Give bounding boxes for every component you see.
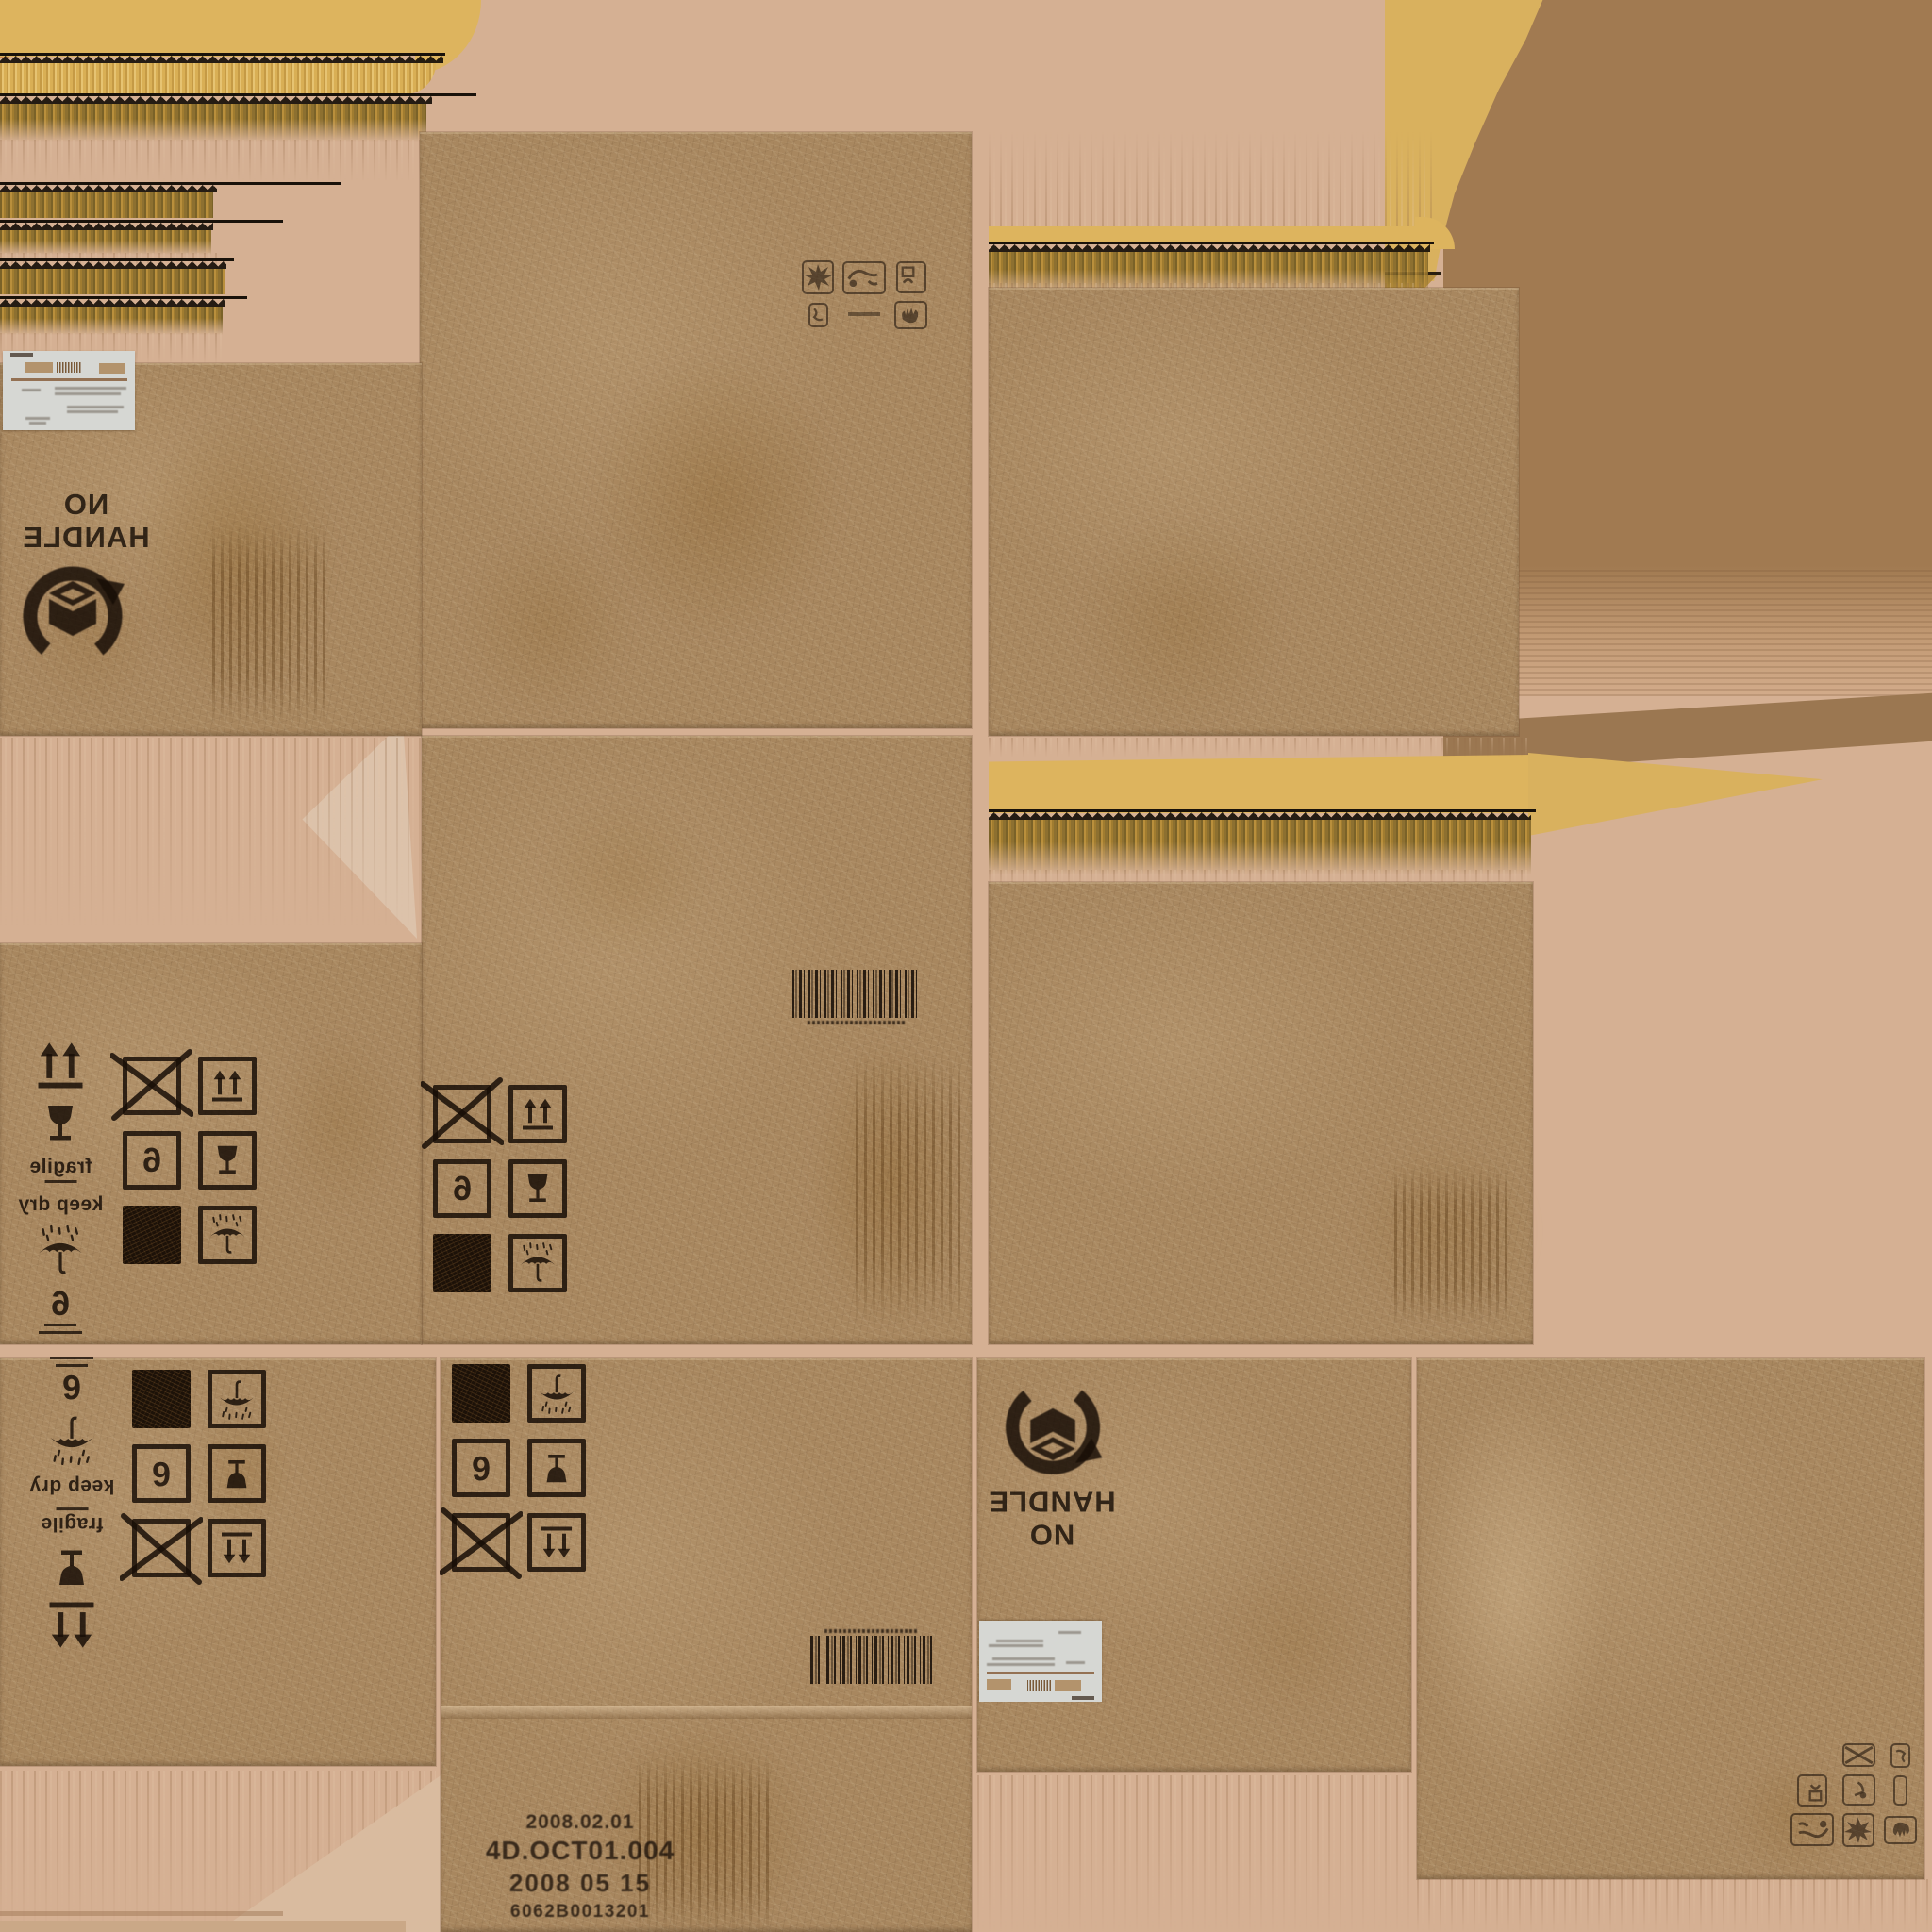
box-panel-top bbox=[420, 132, 972, 728]
label-text-row bbox=[67, 406, 124, 408]
small-stamp-icon bbox=[1890, 1743, 1910, 1768]
barcode-bars bbox=[792, 970, 921, 1018]
box-panel-right-top bbox=[989, 288, 1519, 736]
fragile-glass-box-icon bbox=[208, 1444, 266, 1503]
cardboard-texture-atlas: fragilekeep dry6 6 6 6keep dryfragile 6 … bbox=[0, 0, 1932, 1932]
print-lot-code: 4D.OCT01.004 bbox=[467, 1836, 693, 1866]
corrugation-teeth bbox=[0, 185, 217, 192]
background-streaks bbox=[989, 132, 1432, 226]
label-cutout bbox=[25, 362, 53, 373]
no-handle-line1: NO bbox=[972, 1518, 1132, 1551]
handle-with-care-stamp bbox=[998, 1370, 1109, 1481]
label-text-row bbox=[29, 422, 46, 425]
barcode-text bbox=[824, 1629, 918, 1633]
print-code-block: 2008.02.01 4D.OCT01.004 2008 05 15 6062B… bbox=[467, 1811, 693, 1923]
fold-line bbox=[441, 1706, 972, 1719]
small-stamp-icon bbox=[808, 303, 828, 327]
barcode bbox=[792, 970, 921, 1026]
handling-symbol-column: 6keep dryfragile bbox=[26, 1357, 117, 1650]
handle-with-care-stamp bbox=[15, 559, 132, 676]
label-text-row bbox=[55, 387, 126, 390]
no-stacking-crossed-box-icon bbox=[123, 1057, 181, 1115]
stain bbox=[1074, 514, 1291, 731]
no-handle-line2: HANDLE bbox=[972, 1485, 1132, 1518]
label-cutout bbox=[1055, 1680, 1081, 1690]
keep-dry-umbrella-icon bbox=[42, 1414, 101, 1465]
fragile-glass-box-icon bbox=[527, 1439, 586, 1497]
label-barcode bbox=[1027, 1680, 1051, 1690]
stamp-underline-mark bbox=[848, 312, 880, 318]
label-text-row bbox=[996, 1641, 1043, 1643]
this-way-up-box-icon bbox=[527, 1513, 586, 1572]
corrugation-strip bbox=[989, 820, 1531, 874]
stack-limit-6-icon: 6 bbox=[50, 1357, 93, 1404]
keep-dry-umbrella-box-icon bbox=[527, 1364, 586, 1423]
fragile-glass-box-icon bbox=[198, 1131, 257, 1190]
shipping-label bbox=[979, 1621, 1102, 1702]
handling-symbol-grid: 6 bbox=[452, 1364, 586, 1572]
handling-symbol-grid: 6 bbox=[132, 1370, 266, 1577]
background-streaks bbox=[0, 738, 422, 926]
print-date-2: 2008 05 15 bbox=[467, 1869, 693, 1898]
corrugation-teeth bbox=[989, 244, 1430, 252]
background-strip bbox=[0, 1921, 406, 1932]
solid-ink-box-icon bbox=[132, 1370, 191, 1428]
corrugation-teeth bbox=[0, 223, 213, 230]
background-shade bbox=[1417, 1396, 1606, 1792]
print-serial: 6062B0013201 bbox=[467, 1902, 693, 1923]
background-streaks bbox=[989, 738, 1531, 757]
empty-slot bbox=[1808, 1752, 1816, 1759]
barcode-text bbox=[808, 1021, 905, 1024]
corrugation-show-through bbox=[1394, 1165, 1507, 1325]
fragile-text: fragile bbox=[41, 1507, 104, 1535]
label-text-row bbox=[55, 392, 121, 395]
no-handle-line1: NO bbox=[6, 489, 166, 522]
sliver-stamp-icon bbox=[1893, 1775, 1907, 1806]
keep-dry-umbrella-box-icon bbox=[508, 1234, 567, 1292]
fragile-glass-icon bbox=[53, 1545, 91, 1589]
keep-dry-umbrella-box-icon bbox=[198, 1206, 257, 1264]
no-stacking-crossed-box-icon bbox=[132, 1519, 191, 1577]
impact-warning-icon bbox=[802, 260, 834, 294]
label-header-mark bbox=[10, 353, 33, 357]
warning-icon-cluster bbox=[1790, 1743, 1917, 1847]
impact-warning-icon bbox=[1843, 1813, 1875, 1847]
keep-dry-umbrella-icon bbox=[31, 1225, 90, 1276]
barcode-bars bbox=[809, 1636, 932, 1684]
keep-dry-text: keep dry bbox=[18, 1193, 103, 1215]
label-text-row bbox=[22, 389, 41, 391]
no-handle-line2: HANDLE bbox=[6, 522, 166, 555]
corrugation-strip bbox=[0, 63, 436, 94]
corrugation-show-through bbox=[212, 524, 330, 726]
no-hand-icon bbox=[1884, 1816, 1917, 1844]
corrugation-strip bbox=[0, 269, 225, 294]
solid-ink-box-icon bbox=[433, 1234, 491, 1292]
warning-figure-icon bbox=[1842, 1775, 1875, 1807]
no-handle-print: NO HANDLE bbox=[972, 1485, 1132, 1550]
this-way-up-box-icon bbox=[508, 1085, 567, 1143]
label-text-row bbox=[987, 1663, 1055, 1666]
no-hand-icon bbox=[894, 301, 927, 329]
warning-box-icon bbox=[896, 261, 926, 293]
crossed-small-icon bbox=[1842, 1744, 1875, 1768]
stack-limit-6-box-icon: 6 bbox=[452, 1439, 510, 1497]
box-panel-bottom-right bbox=[1417, 1358, 1924, 1879]
keep-dry-umbrella-box-icon bbox=[208, 1370, 266, 1428]
label-barcode bbox=[57, 362, 81, 373]
background-streaks bbox=[977, 1775, 1411, 1932]
label-rule bbox=[987, 1673, 1094, 1675]
stack-limit-6-box-icon: 6 bbox=[123, 1131, 181, 1190]
this-way-up-box-icon bbox=[208, 1519, 266, 1577]
handling-symbol-column: fragilekeep dry6 bbox=[15, 1041, 106, 1334]
box-panel-right-middle bbox=[989, 882, 1533, 1344]
label-text-row bbox=[1058, 1631, 1081, 1634]
this-way-up-box-icon bbox=[198, 1057, 257, 1115]
cable-plug-icon bbox=[1790, 1814, 1834, 1847]
warning-box-icon bbox=[1797, 1774, 1827, 1807]
cable-plug-icon bbox=[842, 261, 886, 294]
barcode bbox=[809, 1627, 932, 1684]
no-stacking-crossed-box-icon bbox=[452, 1513, 510, 1572]
background-streaks bbox=[1417, 1879, 1932, 1932]
label-cutout bbox=[99, 363, 125, 374]
corrugation-strip bbox=[0, 230, 211, 255]
no-handle-print: NO HANDLE bbox=[6, 489, 166, 554]
corrugation-teeth bbox=[0, 96, 432, 104]
background-strip bbox=[0, 1911, 283, 1916]
label-header-mark bbox=[1072, 1696, 1094, 1700]
corrugation-strip bbox=[989, 755, 1531, 813]
label-text-row bbox=[25, 417, 50, 420]
keep-dry-text: keep dry bbox=[29, 1475, 114, 1497]
corrugation-strip bbox=[0, 104, 426, 142]
print-date-1: 2008.02.01 bbox=[467, 1811, 693, 1834]
corrugation-teeth bbox=[0, 299, 225, 307]
stain bbox=[535, 792, 714, 962]
label-text-row bbox=[992, 1657, 1055, 1660]
stack-limit-6-icon: 6 bbox=[39, 1287, 82, 1334]
handling-symbol-grid: 6 bbox=[123, 1057, 257, 1264]
fragile-glass-icon bbox=[42, 1102, 79, 1145]
stain bbox=[1213, 1557, 1374, 1726]
no-stacking-crossed-box-icon bbox=[433, 1085, 491, 1143]
fragile-text: fragile bbox=[29, 1156, 92, 1183]
corrugation-teeth bbox=[0, 261, 226, 269]
corrugation-strip bbox=[0, 307, 223, 335]
warning-icon-cluster bbox=[802, 260, 927, 329]
stain bbox=[458, 528, 637, 717]
corrugation-strip bbox=[0, 0, 458, 57]
label-rule bbox=[11, 378, 127, 381]
corrugation-wedge bbox=[1528, 753, 1823, 836]
label-text-row bbox=[67, 410, 118, 413]
label-cutout bbox=[987, 1679, 1011, 1690]
shipping-label bbox=[3, 351, 135, 430]
label-text-row bbox=[989, 1645, 1043, 1648]
fragile-glass-box-icon bbox=[508, 1159, 567, 1218]
stack-limit-6-box-icon: 6 bbox=[132, 1444, 191, 1503]
background-streaks bbox=[0, 140, 426, 181]
label-text-row bbox=[1066, 1661, 1085, 1664]
this-way-up-icon bbox=[30, 1041, 91, 1091]
solid-ink-box-icon bbox=[123, 1206, 181, 1264]
stack-limit-6-box-icon: 6 bbox=[433, 1159, 491, 1218]
solid-ink-box-icon bbox=[452, 1364, 510, 1423]
stain bbox=[274, 1028, 406, 1217]
this-way-up-icon bbox=[42, 1599, 102, 1650]
corrugation-teeth bbox=[0, 56, 443, 63]
corrugation-strip bbox=[0, 192, 213, 218]
handling-symbol-grid: 6 bbox=[433, 1085, 567, 1292]
corrugation-show-through bbox=[856, 1052, 964, 1325]
corrugation-teeth bbox=[989, 812, 1531, 820]
